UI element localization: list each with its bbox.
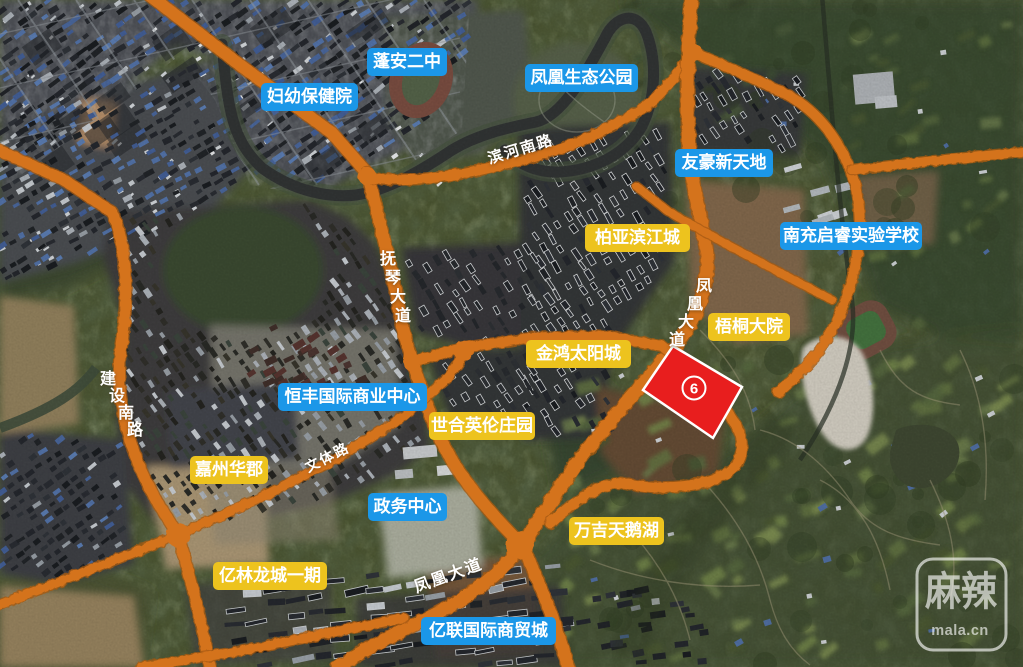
- svg-text:麻辣: 麻辣: [925, 570, 998, 614]
- svg-text:mala.cn: mala.cn: [931, 623, 989, 639]
- svg-text:6: 6: [690, 381, 698, 398]
